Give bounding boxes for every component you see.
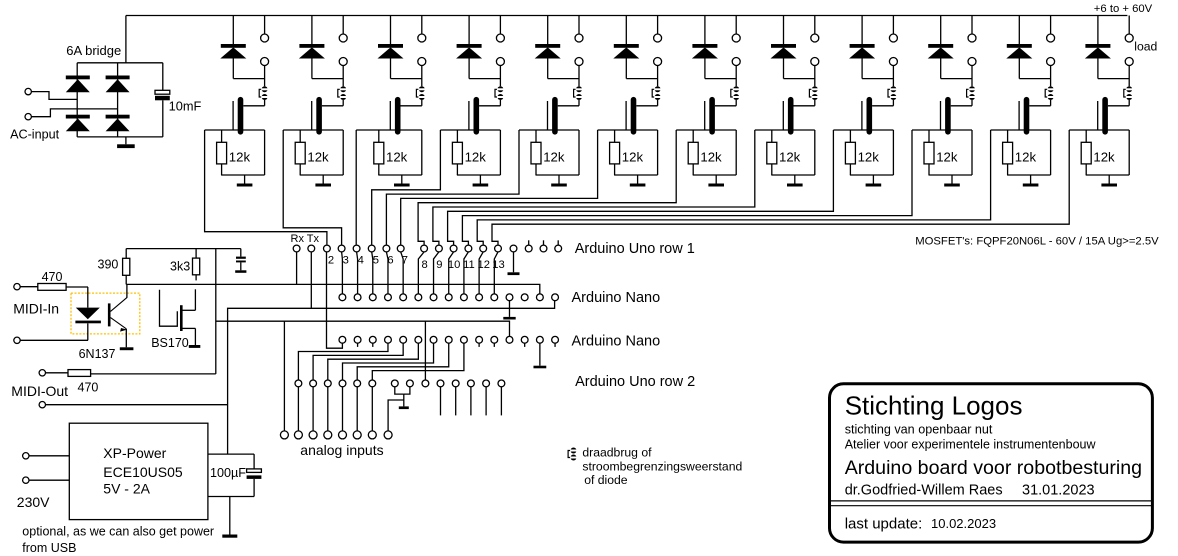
svg-text:12k: 12k	[779, 150, 801, 165]
svg-text:9: 9	[436, 259, 442, 271]
svg-text:Rx Tx: Rx Tx	[291, 233, 320, 245]
svg-text:12k: 12k	[307, 150, 329, 165]
svg-text:8: 8	[421, 259, 427, 271]
svg-text:MIDI-Out: MIDI-Out	[11, 383, 68, 399]
svg-text:31.01.2023: 31.01.2023	[1022, 482, 1095, 498]
svg-text:470: 470	[78, 381, 99, 395]
svg-text:390: 390	[98, 257, 119, 271]
svg-text:Arduino Nano: Arduino Nano	[572, 333, 661, 349]
svg-text:10mF: 10mF	[169, 99, 202, 114]
svg-text:6A bridge: 6A bridge	[66, 43, 121, 58]
svg-text:MIDI-In: MIDI-In	[13, 301, 59, 317]
svg-text:Arduino Uno row 1: Arduino Uno row 1	[575, 241, 695, 257]
svg-text:MOSFET's: FQPF20N06L - 60V / 1: MOSFET's: FQPF20N06L - 60V / 15A Ug>=2.5…	[915, 235, 1159, 247]
svg-text:230V: 230V	[17, 494, 50, 510]
svg-text:analog inputs: analog inputs	[300, 442, 383, 458]
svg-text:12k: 12k	[386, 150, 408, 165]
svg-text:load: load	[1134, 40, 1157, 54]
svg-text:ECE10US05: ECE10US05	[103, 464, 183, 480]
svg-text:12k: 12k	[936, 150, 958, 165]
svg-text:12k: 12k	[1093, 150, 1115, 165]
svg-text:Arduino Uno row 2: Arduino Uno row 2	[575, 374, 695, 390]
svg-text:12k: 12k	[622, 150, 644, 165]
svg-text:3: 3	[343, 255, 349, 267]
svg-text:Arduino Nano: Arduino Nano	[572, 290, 661, 306]
svg-text:2: 2	[328, 255, 334, 267]
svg-text:XP-Power: XP-Power	[103, 445, 166, 461]
svg-text:3k3: 3k3	[170, 260, 190, 274]
svg-text:last update:: last update:	[845, 516, 923, 533]
svg-text:12k: 12k	[1015, 150, 1037, 165]
svg-text:12k: 12k	[858, 150, 880, 165]
svg-text:stichting van openbaar nut: stichting van openbaar nut	[845, 422, 993, 436]
svg-text:Atelier voor experimentele ins: Atelier voor experimentele instrumentenb…	[845, 438, 1097, 452]
svg-text:12k: 12k	[700, 150, 722, 165]
svg-text:12k: 12k	[543, 150, 565, 165]
svg-text:dr.Godfried-Willem Raes: dr.Godfried-Willem Raes	[845, 482, 1003, 498]
svg-text:5V - 2A: 5V - 2A	[103, 481, 150, 497]
svg-text:stroombegrenzingsweerstand: stroombegrenzingsweerstand	[582, 459, 742, 473]
svg-text:AC-input: AC-input	[10, 128, 59, 142]
svg-text:Stichting Logos: Stichting Logos	[845, 391, 1023, 421]
svg-text:5: 5	[373, 255, 379, 267]
svg-text:100µF: 100µF	[210, 466, 246, 480]
svg-text:470: 470	[42, 270, 63, 284]
svg-text:+6 to + 60V: +6 to + 60V	[1094, 3, 1153, 15]
svg-text:12k: 12k	[229, 150, 251, 165]
svg-text:11: 11	[463, 259, 475, 271]
svg-text:12k: 12k	[465, 150, 487, 165]
svg-text:of diode: of diode	[584, 473, 628, 487]
svg-text:Arduino board voor robotbestur: Arduino board voor robotbesturing	[845, 457, 1142, 479]
svg-text:10.02.2023: 10.02.2023	[931, 516, 996, 531]
svg-text:4: 4	[358, 255, 364, 267]
svg-text:BS170: BS170	[151, 336, 189, 350]
svg-text:6N137: 6N137	[79, 347, 116, 361]
svg-text:draadbrug of: draadbrug of	[582, 446, 652, 460]
svg-text:from USB: from USB	[22, 541, 76, 555]
svg-text:10: 10	[448, 259, 460, 271]
svg-text:optional, as we can also get p: optional, as we can also get power	[22, 525, 214, 539]
